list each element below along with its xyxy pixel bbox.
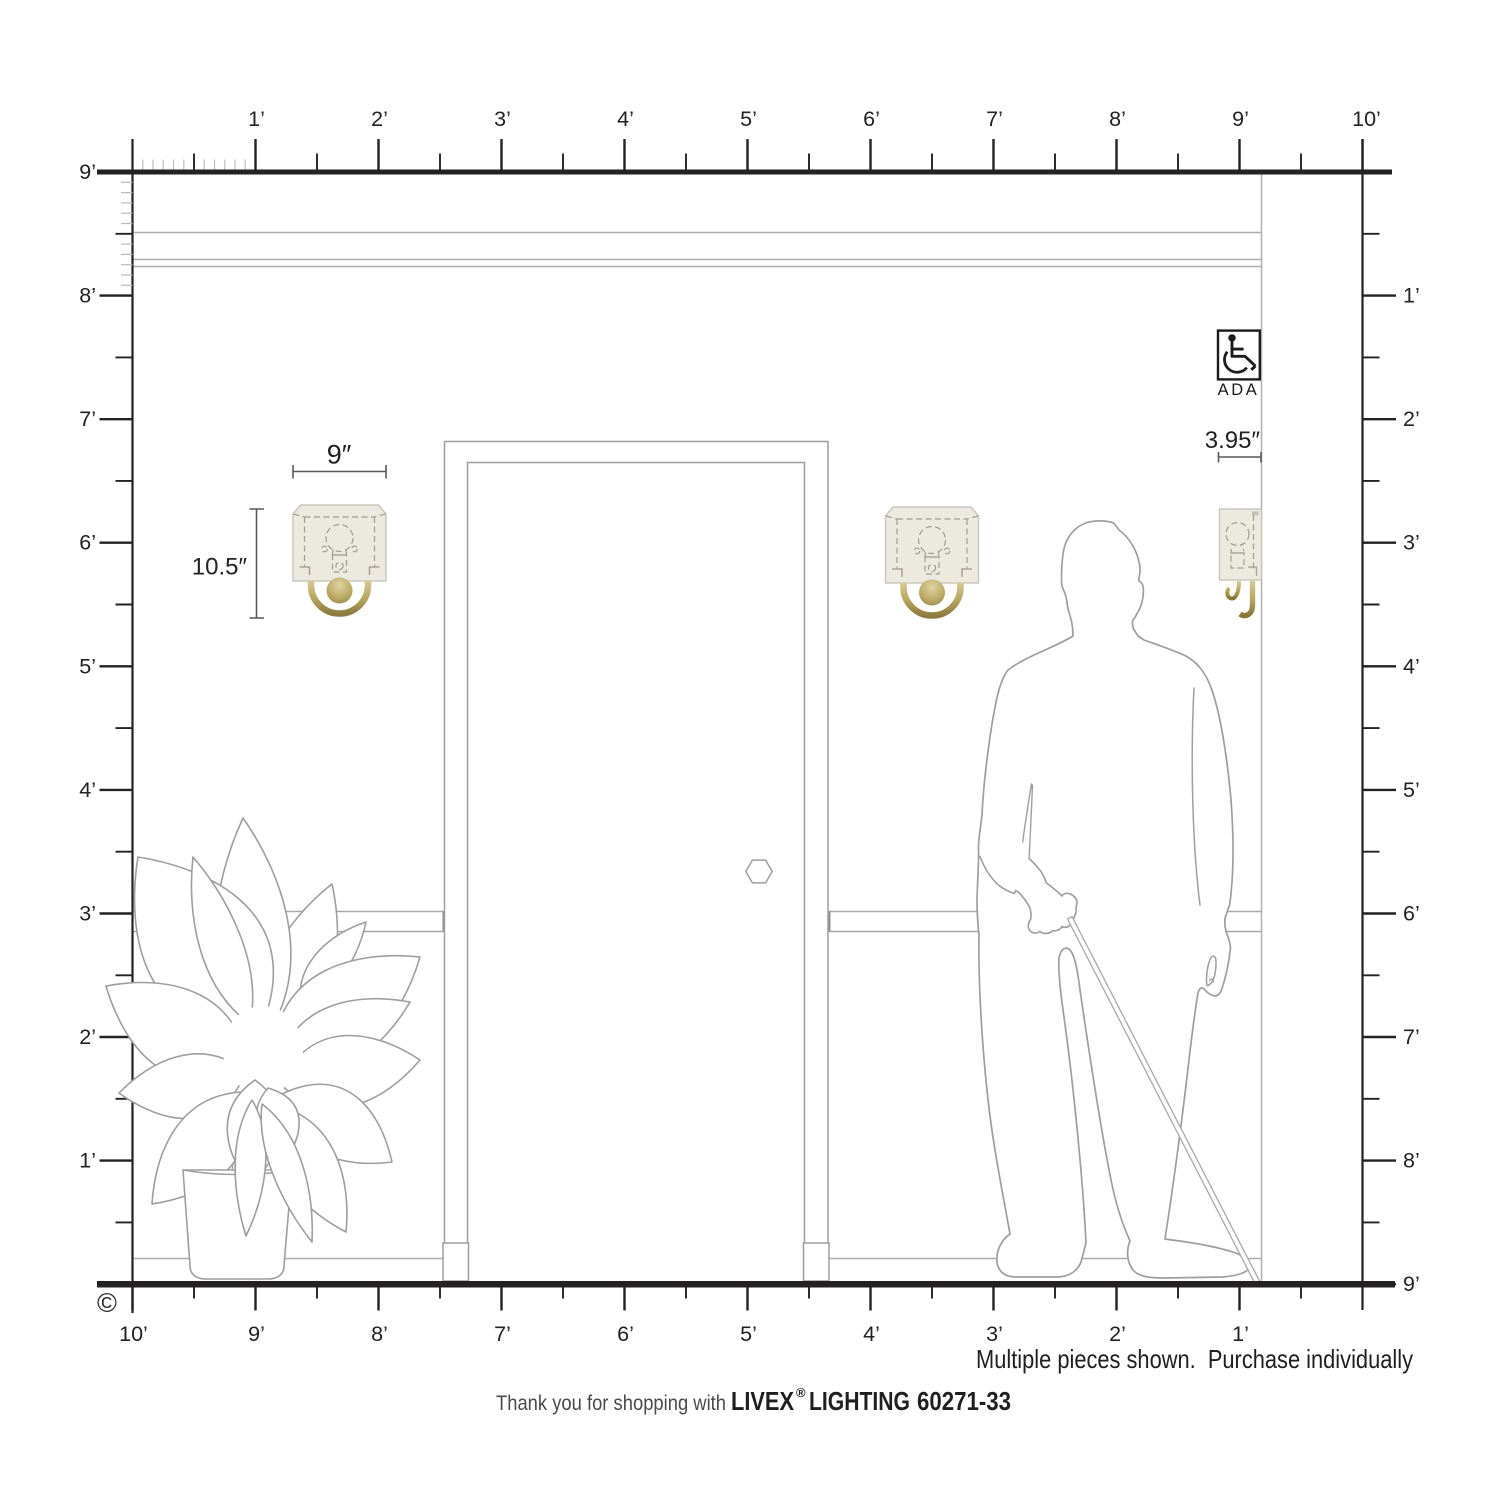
svg-text:Thank you for shopping with: Thank you for shopping with — [496, 1392, 726, 1415]
svg-text:10.5″: 10.5″ — [192, 554, 248, 581]
svg-text:10’: 10’ — [1352, 107, 1381, 131]
svg-text:6’: 6’ — [1403, 902, 1420, 926]
svg-text:8’: 8’ — [79, 284, 96, 308]
svg-text:3’: 3’ — [1403, 531, 1420, 555]
svg-text:6’: 6’ — [79, 531, 96, 555]
svg-text:1’: 1’ — [79, 1149, 96, 1173]
svg-text:3’: 3’ — [494, 107, 511, 131]
svg-text:9’: 9’ — [1232, 107, 1249, 131]
svg-text:1’: 1’ — [1232, 1322, 1249, 1346]
svg-text:1’: 1’ — [248, 107, 265, 131]
svg-text:9’: 9’ — [1403, 1272, 1420, 1296]
svg-text:4’: 4’ — [863, 1322, 880, 1346]
svg-text:7’: 7’ — [494, 1322, 511, 1346]
svg-text:6’: 6’ — [617, 1322, 634, 1346]
svg-text:9’: 9’ — [79, 160, 96, 184]
svg-text:2’: 2’ — [1403, 407, 1420, 431]
svg-text:2’: 2’ — [79, 1025, 96, 1049]
svg-text:10’: 10’ — [119, 1322, 148, 1346]
svg-text:8’: 8’ — [1403, 1149, 1420, 1173]
svg-text:5’: 5’ — [79, 654, 96, 678]
svg-text:4’: 4’ — [1403, 654, 1420, 678]
svg-text:3.95″: 3.95″ — [1205, 427, 1261, 454]
svg-text:9’: 9’ — [248, 1322, 265, 1346]
svg-text:6’: 6’ — [863, 107, 880, 131]
svg-text:Multiple pieces shown. Purcha: Multiple pieces shown. Purchase individu… — [976, 1344, 1413, 1374]
svg-text:7’: 7’ — [1403, 1025, 1420, 1049]
svg-text:2’: 2’ — [371, 107, 388, 131]
svg-text:4’: 4’ — [617, 107, 634, 131]
svg-text:3’: 3’ — [79, 902, 96, 926]
svg-text:5’: 5’ — [740, 107, 757, 131]
svg-text:5’: 5’ — [1403, 778, 1420, 802]
svg-text:3’: 3’ — [986, 1322, 1003, 1346]
svg-text:8’: 8’ — [371, 1322, 388, 1346]
svg-text:4’: 4’ — [79, 778, 96, 802]
svg-text:2’: 2’ — [1109, 1322, 1126, 1346]
svg-text:7’: 7’ — [79, 407, 96, 431]
svg-text:LIGHTING: LIGHTING — [809, 1386, 910, 1416]
svg-text:9″: 9″ — [327, 440, 352, 470]
svg-text:1’: 1’ — [1403, 284, 1420, 308]
svg-text:5’: 5’ — [740, 1322, 757, 1346]
svg-text:60271-33: 60271-33 — [917, 1386, 1011, 1416]
svg-text:LIVEX: LIVEX — [731, 1386, 795, 1416]
svg-text:©: © — [97, 1288, 117, 1318]
svg-text:®: ® — [796, 1385, 806, 1400]
svg-text:8’: 8’ — [1109, 107, 1126, 131]
svg-text:ADA: ADA — [1218, 381, 1260, 399]
svg-text:7’: 7’ — [986, 107, 1003, 131]
